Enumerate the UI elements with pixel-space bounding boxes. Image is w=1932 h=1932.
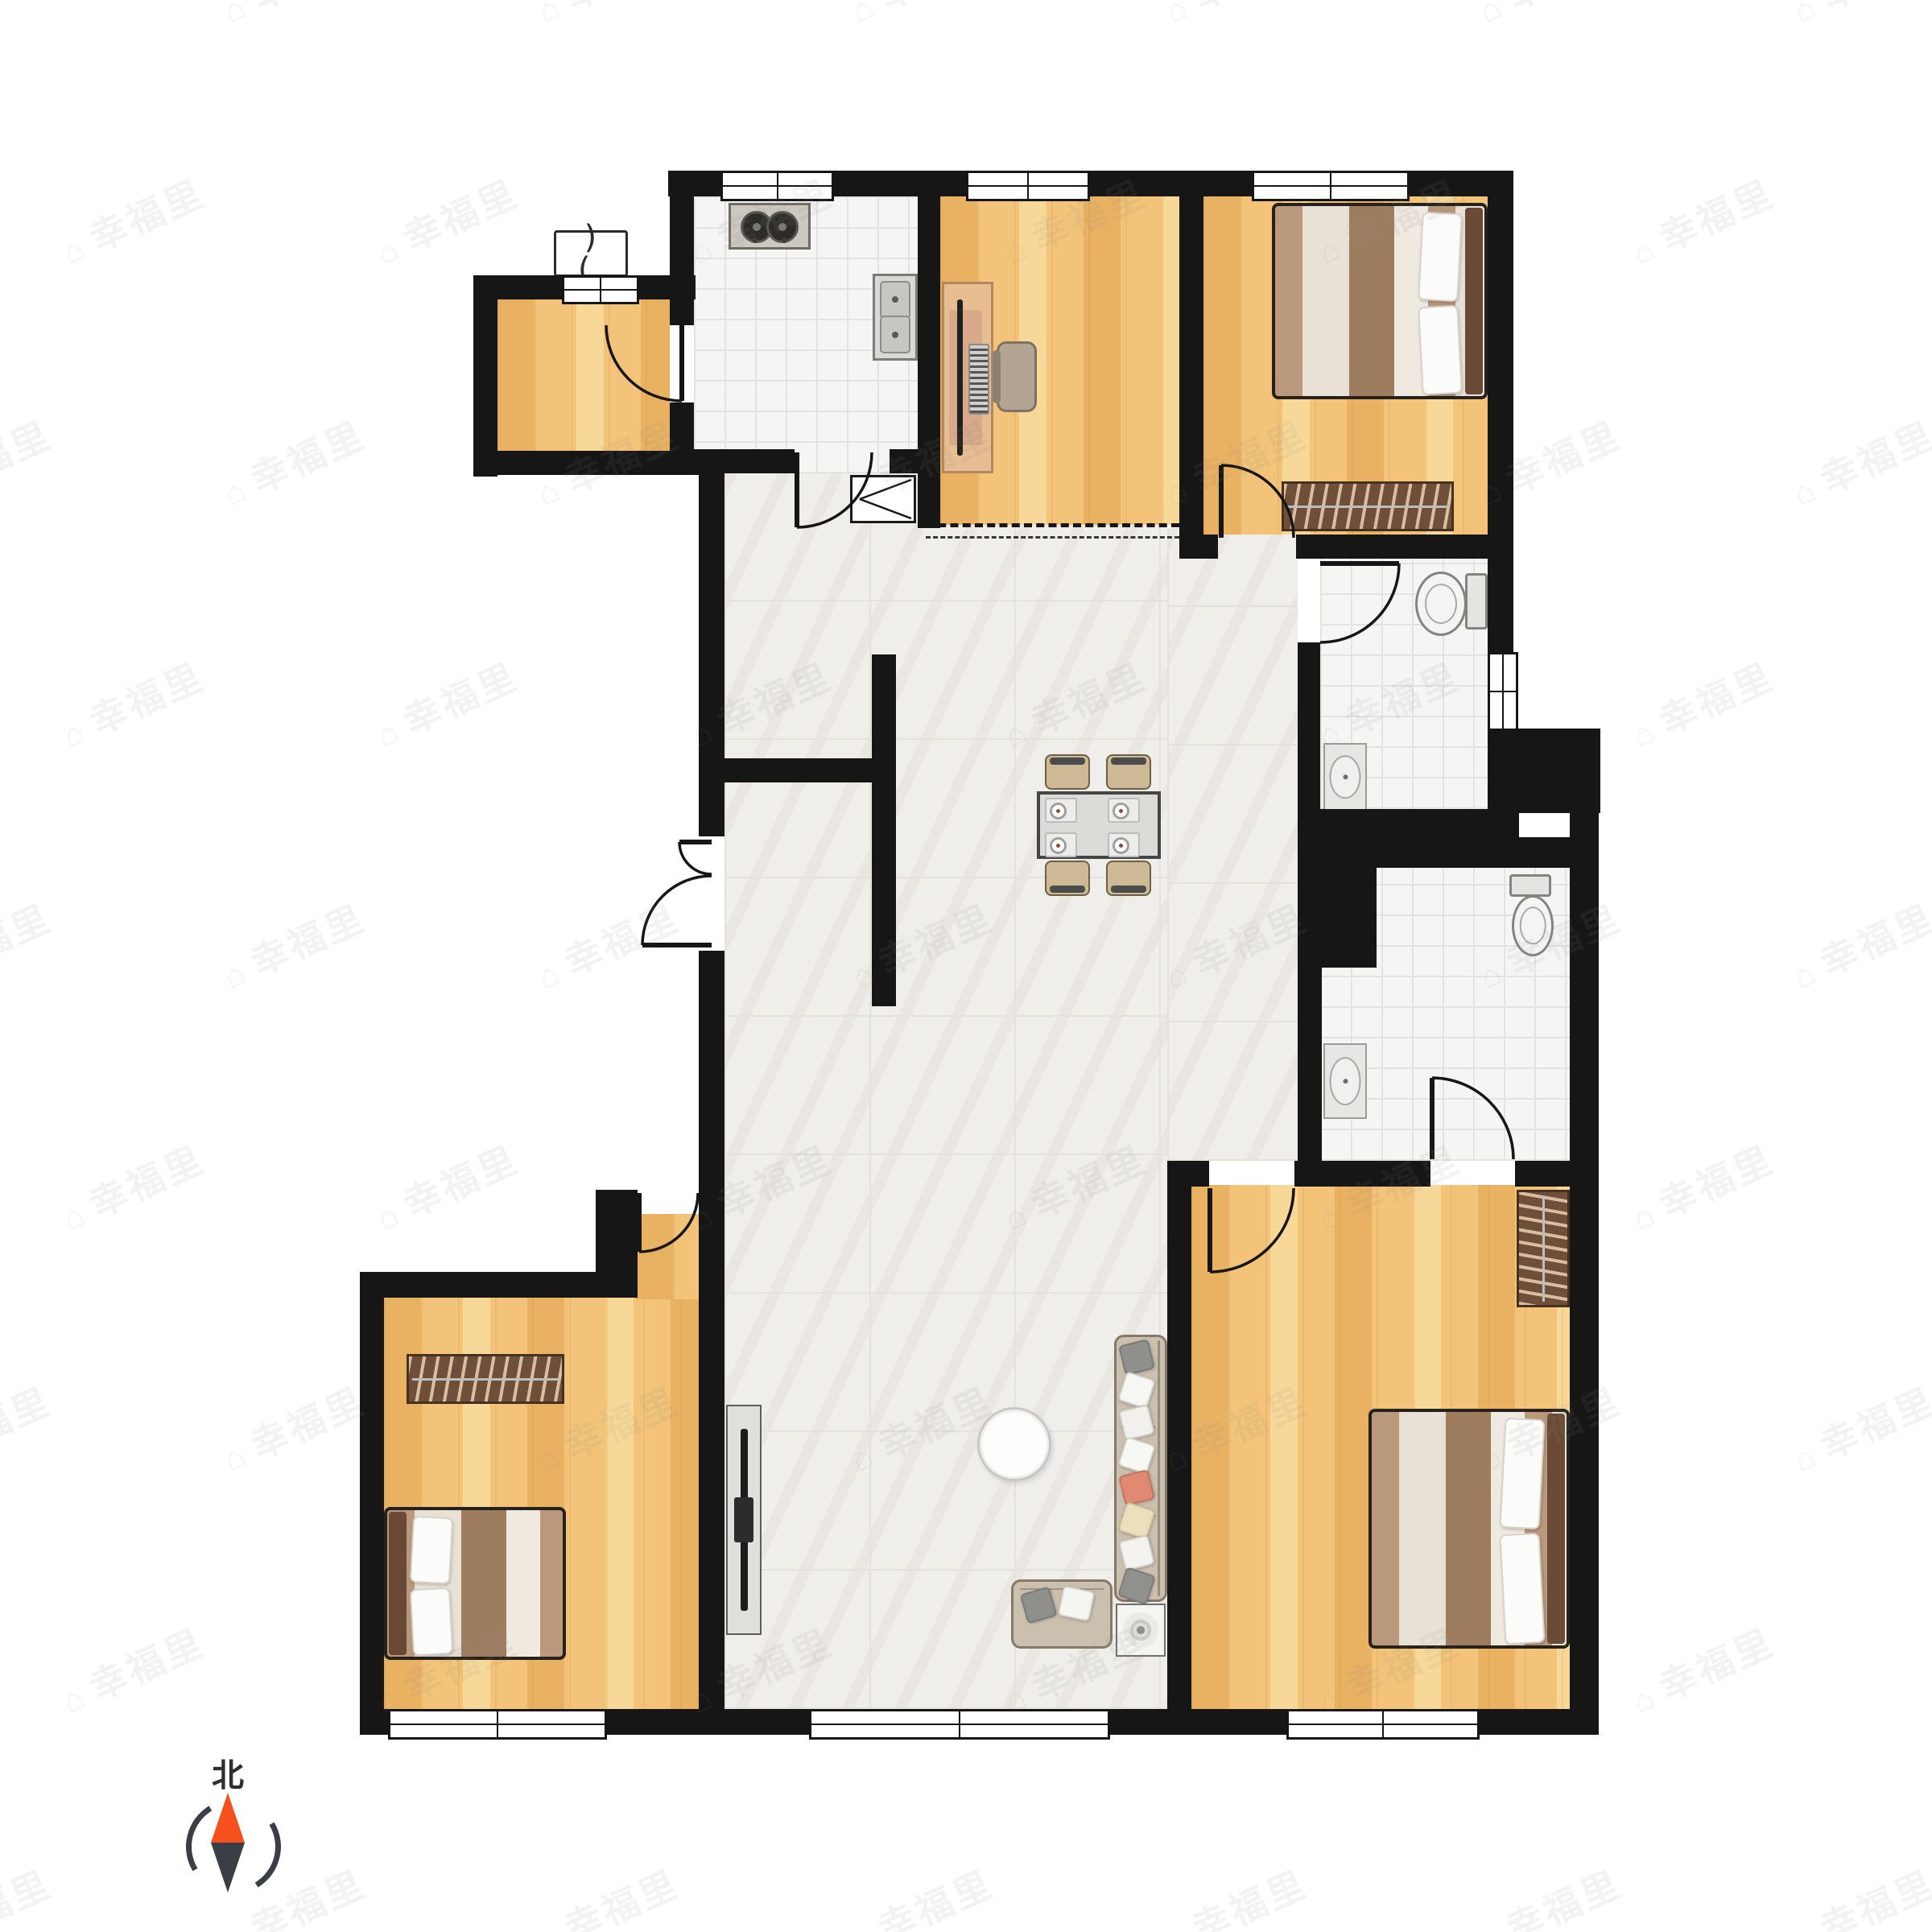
watermark-text: ⌂幸福里: [1155, 0, 1315, 33]
watermark-house-icon: ⌂: [1789, 0, 1824, 30]
watermark-brand-text: 幸福里: [1653, 1621, 1781, 1709]
wall-segment-14: [1298, 809, 1519, 837]
wall-segment-7: [890, 449, 919, 473]
watermark-house-icon: ⌂: [219, 0, 254, 30]
wall-segment-13: [1298, 642, 1320, 809]
wall-segment-16: [1298, 968, 1322, 1161]
watermark-text: ⌂幸福里: [0, 1856, 59, 1932]
watermark-text: ⌂幸福里: [213, 0, 374, 33]
side-table-lamp-lamp: [1123, 1612, 1158, 1648]
study-open-side: [926, 523, 1179, 527]
living-armchair-pillow-0: [1019, 1586, 1057, 1624]
watermark-house-icon: ⌂: [533, 0, 568, 30]
bed-master-pillow: [1499, 1418, 1545, 1529]
kitchen-stove-knob: [782, 237, 787, 243]
toilet-bathroom-1: [1414, 570, 1488, 633]
watermark-brand-text: 幸福里: [873, 0, 1000, 18]
wall-segment-21: [1294, 1161, 1430, 1187]
watermark-house-icon: ⌂: [58, 1678, 93, 1720]
watermark-house-icon: ⌂: [1475, 1920, 1510, 1932]
watermark-brand-text: 幸福里: [1814, 0, 1932, 18]
watermark-house-icon: ⌂: [1628, 712, 1663, 754]
watermark-text: ⌂幸福里: [1783, 1373, 1932, 1483]
sink-bathroom-2-bowl: [1330, 1057, 1361, 1105]
bed-bottom-left-headboard: [389, 1512, 407, 1655]
kitchen-sink-basin-bottom: [880, 316, 910, 353]
bed-master-headboard: [1547, 1414, 1565, 1644]
watermark-brand-text: 幸福里: [1501, 0, 1628, 18]
bed-secondary: [1272, 203, 1488, 399]
bed-secondary-pillow: [1418, 212, 1463, 302]
watermark-house-icon: ⌂: [58, 1195, 93, 1237]
watermark-text: ⌂幸福里: [52, 165, 213, 275]
compass-needle-north-icon: [211, 1793, 245, 1843]
sink-bathroom-2: [1323, 1043, 1367, 1119]
watermark-text: ⌂幸福里: [1469, 1856, 1629, 1932]
watermark-brand-text: 幸福里: [559, 897, 686, 985]
wall-segment-27: [596, 1190, 638, 1298]
entry-door-small-swing-arc: [679, 842, 712, 874]
study-office-chair-backrest: [993, 350, 1001, 403]
watermark-brand-text: 幸福里: [1814, 897, 1932, 985]
wardrobe-secondary: [1282, 481, 1454, 531]
toilet-bathroom-2-bowl: [1512, 895, 1554, 956]
watermark-house-icon: ⌂: [219, 1920, 254, 1932]
watermark-text: ⌂幸福里: [213, 407, 374, 517]
dining-table-set-chair-3: [1106, 861, 1151, 896]
dining-table-set-chair-0: [1045, 754, 1090, 790]
dining-table-set-chair-back-2: [1050, 885, 1085, 893]
watermark-brand-text: 幸福里: [1814, 1863, 1932, 1932]
living-sofa-backrest: [1158, 1340, 1160, 1596]
watermark-brand-text: 幸福里: [0, 1863, 58, 1932]
living-dining-floor: [724, 473, 1167, 1709]
watermark-house-icon: ⌂: [372, 1195, 407, 1237]
watermark-brand-text: 幸福里: [398, 1138, 525, 1226]
watermark-text: ⌂幸福里: [841, 1856, 1001, 1932]
dining-table-set-plate-0: [1050, 803, 1067, 819]
dining-table-set-placemat-2: [1045, 832, 1077, 857]
watermark-brand-text: 幸福里: [1501, 1863, 1628, 1932]
watermark-brand-text: 幸福里: [84, 1621, 211, 1709]
storage-room-floor: [497, 299, 670, 452]
study-desk-monitor: [957, 299, 963, 456]
wall-segment-23: [1167, 1161, 1191, 1709]
living-sofa-pillow-5: [1117, 1501, 1156, 1540]
watermark-text: ⌂幸福里: [0, 0, 59, 33]
living-sofa-pillow-0: [1118, 1339, 1155, 1376]
dining-table-set-plate-1: [1113, 803, 1129, 819]
wall-segment-2: [473, 275, 497, 477]
bedroom-bottom-left-entry-floor: [636, 1214, 700, 1299]
bed-master-pillow: [1499, 1533, 1545, 1645]
kitchen-stove: [729, 203, 811, 250]
watermark-brand-text: 幸福里: [1187, 1863, 1314, 1932]
corridor-floor: [1167, 528, 1298, 1161]
watermark-house-icon: ⌂: [847, 1920, 882, 1932]
watermark-house-icon: ⌂: [219, 471, 254, 513]
watermark-house-icon: ⌂: [1789, 1437, 1824, 1479]
watermark-brand-text: 幸福里: [559, 0, 686, 18]
watermark-brand-text: 幸福里: [245, 414, 372, 502]
kitchen-sink: [873, 274, 918, 361]
wall-segment-6: [694, 449, 795, 473]
watermark-house-icon: ⌂: [533, 954, 568, 996]
dining-table-set-chair-back-1: [1111, 758, 1146, 765]
watermark-brand-text: 幸福里: [1653, 172, 1781, 260]
dining-table-set-chair-back-0: [1050, 758, 1085, 765]
watermark-text: ⌂幸福里: [841, 0, 1001, 33]
watermark-house-icon: ⌂: [1161, 1920, 1196, 1932]
watermark-house-icon: ⌂: [1628, 1678, 1663, 1720]
living-sofa-pillow-2: [1118, 1404, 1155, 1441]
watermark-brand-text: 幸福里: [0, 414, 58, 502]
watermark-text: ⌂幸福里: [527, 0, 687, 33]
watermark-brand-text: 幸福里: [398, 655, 525, 743]
living-sofa-pillow-1: [1117, 1371, 1156, 1410]
watermark-brand-text: 幸福里: [873, 1863, 1000, 1932]
watermark-text: ⌂幸福里: [52, 1131, 213, 1241]
kitchen-window: [720, 171, 834, 201]
watermark-brand-text: 幸福里: [0, 1380, 58, 1468]
wall-segment-12: [1296, 535, 1513, 559]
living-sofa-pillow-6: [1118, 1534, 1155, 1571]
watermark-text: ⌂幸福里: [0, 890, 59, 1000]
bathroom-1-window: [1488, 652, 1518, 731]
watermark-brand-text: 幸福里: [1187, 0, 1314, 18]
watermark-house-icon: ⌂: [533, 471, 568, 513]
watermark-text: ⌂幸福里: [213, 1373, 374, 1483]
wall-segment-5: [670, 402, 694, 452]
watermark-brand-text: 幸福里: [1653, 1138, 1781, 1226]
toilet-bathroom-2: [1507, 874, 1554, 955]
watermark-house-icon: ⌂: [1628, 1195, 1663, 1237]
wardrobe-master: [1517, 1190, 1570, 1307]
watermark-house-icon: ⌂: [58, 712, 93, 754]
compass-north-label: 北: [212, 1749, 244, 1796]
wall-segment-24: [699, 473, 724, 836]
wall-segment-19: [1570, 813, 1599, 1735]
wall-segment-25: [699, 951, 724, 1191]
wall-segment-31: [724, 758, 873, 782]
watermark-house-icon: ⌂: [1789, 1920, 1824, 1932]
watermark-text: ⌂幸福里: [366, 648, 526, 758]
wall-segment-15: [1298, 837, 1377, 968]
watermark-brand-text: 幸福里: [559, 1863, 686, 1932]
watermark-brand-text: 幸福里: [245, 897, 372, 985]
watermark-house-icon: ⌂: [1475, 0, 1510, 30]
bedroom-bottom-left-window: [388, 1709, 607, 1740]
wall-segment-11: [1179, 535, 1218, 559]
sink-bathroom-1-bowl: [1330, 755, 1361, 799]
watermark-text: ⌂幸福里: [0, 407, 59, 517]
living-armchair-seam: [1020, 1588, 1104, 1590]
watermark-brand-text: 幸福里: [0, 0, 58, 18]
dining-table-set-chair-2: [1045, 861, 1090, 896]
watermark-house-icon: ⌂: [1628, 229, 1663, 271]
master-bedroom-window: [1286, 1709, 1480, 1740]
living-sofa-pillow-3: [1117, 1436, 1156, 1475]
bed-master: [1368, 1409, 1570, 1649]
watermark-brand-text: 幸福里: [1653, 655, 1781, 743]
study-desk: [942, 282, 993, 473]
watermark-text: ⌂幸福里: [1622, 648, 1782, 758]
round-rug: [977, 1407, 1051, 1481]
watermark-text: ⌂幸福里: [213, 890, 374, 1000]
watermark-text: ⌂幸福里: [527, 890, 687, 1000]
living-sofa-pillow-7: [1117, 1567, 1156, 1605]
wall-segment-17: [1375, 837, 1572, 868]
wall-segment-9: [1179, 195, 1203, 559]
bedroom-top-right-window: [1252, 171, 1410, 201]
watermark-text: ⌂幸福里: [366, 165, 526, 275]
entry-cabinet: [850, 475, 916, 523]
watermark-text: ⌂幸福里: [1469, 0, 1629, 33]
ac-outdoor-unit: )(: [554, 230, 628, 277]
watermark-text: ⌂幸福里: [1622, 165, 1782, 275]
watermark-house-icon: ⌂: [847, 0, 882, 30]
dining-table-set-plate-3: [1113, 837, 1129, 854]
floorplan-canvas: )( ⌂幸福里⌂幸福里⌂幸福里⌂幸福里⌂幸福里⌂幸福里⌂幸福里⌂幸福里⌂幸福里⌂…: [0, 0, 1932, 1932]
living-armchair: [1011, 1579, 1113, 1649]
study-office-chair: [997, 341, 1037, 412]
tv-console: [726, 1405, 762, 1635]
study-open-side-inner: [926, 536, 1179, 539]
watermark-text: ⌂幸福里: [1622, 1614, 1782, 1724]
wall-segment-26: [699, 1190, 724, 1711]
kitchen-stove-knob: [752, 237, 758, 243]
watermark-brand-text: 幸福里: [1501, 414, 1628, 502]
wall-segment-29: [360, 1272, 384, 1735]
sink-bathroom-1: [1323, 743, 1367, 811]
bed-bottom-left-pillow: [410, 1587, 453, 1657]
watermark-text: ⌂幸福里: [1783, 890, 1932, 1000]
wall-segment-22: [1515, 1161, 1571, 1187]
watermark-text: ⌂幸福里: [366, 1131, 526, 1241]
entry-door-main-swing-arc: [642, 876, 712, 945]
storage-window: [562, 275, 639, 304]
dining-table-set-chair-back-3: [1111, 885, 1146, 893]
living-sofa: [1114, 1335, 1167, 1602]
wall-segment-4: [670, 195, 694, 325]
watermark-house-icon: ⌂: [372, 229, 407, 271]
dining-table-set-plate-2: [1050, 837, 1067, 854]
watermark-text: ⌂幸福里: [1783, 1856, 1932, 1932]
watermark-text: ⌂幸福里: [1783, 407, 1932, 517]
dining-table-set-placemat-3: [1108, 832, 1140, 857]
watermark-brand-text: 幸福里: [84, 1138, 211, 1226]
watermark-text: ⌂幸福里: [1155, 1856, 1315, 1932]
dining-table-set-placemat-1: [1108, 798, 1140, 823]
watermark-house-icon: ⌂: [1789, 471, 1824, 513]
watermark-brand-text: 幸福里: [245, 1380, 372, 1468]
watermark-brand-text: 幸福里: [0, 897, 58, 985]
watermark-brand-text: 幸福里: [398, 172, 525, 260]
watermark-brand-text: 幸福里: [1814, 414, 1932, 502]
bed-bottom-left: [384, 1507, 566, 1660]
wall-segment-8: [918, 195, 940, 528]
dining-table-set: [1037, 791, 1161, 859]
wall-segment-18: [1488, 729, 1600, 813]
wall-segment-28: [360, 1272, 597, 1298]
study-desk-keyboard: [968, 344, 989, 415]
watermark-house-icon: ⌂: [533, 1920, 568, 1932]
compass: 北: [186, 1799, 270, 1883]
dining-table-set-chair-1: [1106, 754, 1151, 790]
living-armchair-pillow-1: [1057, 1585, 1095, 1621]
living-sofa-pillow-4: [1118, 1469, 1155, 1506]
watermark-house-icon: ⌂: [1789, 954, 1824, 996]
toilet-bathroom-1-bowl: [1415, 572, 1467, 636]
wall-segment-3: [473, 451, 702, 475]
dining-table-set-placemat-0: [1045, 798, 1077, 823]
living-window: [809, 1709, 1110, 1740]
watermark-text: ⌂幸福里: [1622, 1131, 1782, 1241]
compass-needle-south-icon: [211, 1843, 245, 1893]
watermark-brand-text: 幸福里: [245, 0, 372, 18]
watermark-house-icon: ⌂: [219, 954, 254, 996]
bed-bottom-left-pillow: [410, 1516, 453, 1585]
bed-secondary-headboard: [1465, 208, 1483, 394]
watermark-text: ⌂幸福里: [1783, 0, 1932, 33]
side-table-lamp: [1116, 1604, 1166, 1657]
study-window: [966, 171, 1090, 201]
watermark-text: ⌂幸福里: [52, 648, 213, 758]
watermark-house-icon: ⌂: [219, 1437, 254, 1479]
watermark-brand-text: 幸福里: [84, 655, 211, 743]
watermark-house-icon: ⌂: [58, 229, 93, 271]
toilet-bathroom-1-tank: [1465, 573, 1488, 630]
kitchen-sink-basin-top: [880, 281, 910, 319]
watermark-text: ⌂幸福里: [0, 1373, 59, 1483]
watermark-brand-text: 幸福里: [1814, 1380, 1932, 1468]
watermark-brand-text: 幸福里: [84, 172, 211, 260]
toilet-bathroom-2-tank: [1509, 874, 1551, 897]
watermark-house-icon: ⌂: [372, 712, 407, 754]
tv-console-media-box: [734, 1497, 753, 1542]
watermark-text: ⌂幸福里: [52, 1614, 213, 1724]
wall-segment-32: [872, 654, 896, 1006]
watermark-house-icon: ⌂: [1161, 0, 1196, 30]
wardrobe-bottom-left: [407, 1354, 564, 1404]
watermark-text: ⌂幸福里: [527, 1856, 687, 1932]
bed-secondary-pillow: [1418, 305, 1463, 395]
